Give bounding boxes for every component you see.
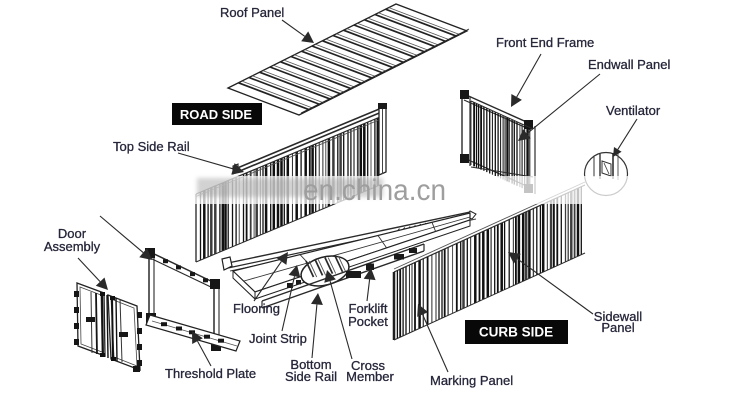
svg-text:Roof Panel: Roof Panel [220,5,284,20]
svg-text:Top Side Rail: Top Side Rail [113,139,190,154]
svg-text:Ventilator: Ventilator [606,103,661,118]
svg-text:Flooring: Flooring [233,301,280,316]
svg-text:Joint Strip: Joint Strip [249,331,307,346]
svg-text:Pocket: Pocket [348,314,388,329]
svg-text:Endwall Panel: Endwall Panel [588,57,670,72]
svg-text:ROAD SIDE: ROAD SIDE [180,107,253,122]
svg-text:en.china.cn: en.china.cn [303,174,446,207]
svg-text:Member: Member [346,369,394,384]
svg-text:Side Rail: Side Rail [285,369,337,384]
svg-text:CURB SIDE: CURB SIDE [479,325,553,340]
svg-text:Panel: Panel [601,320,634,335]
svg-text:Threshold Plate: Threshold Plate [165,366,256,381]
svg-text:Front End Frame: Front End Frame [496,35,594,50]
svg-text:Marking Panel: Marking Panel [430,373,513,388]
svg-text:Assembly: Assembly [44,239,101,254]
